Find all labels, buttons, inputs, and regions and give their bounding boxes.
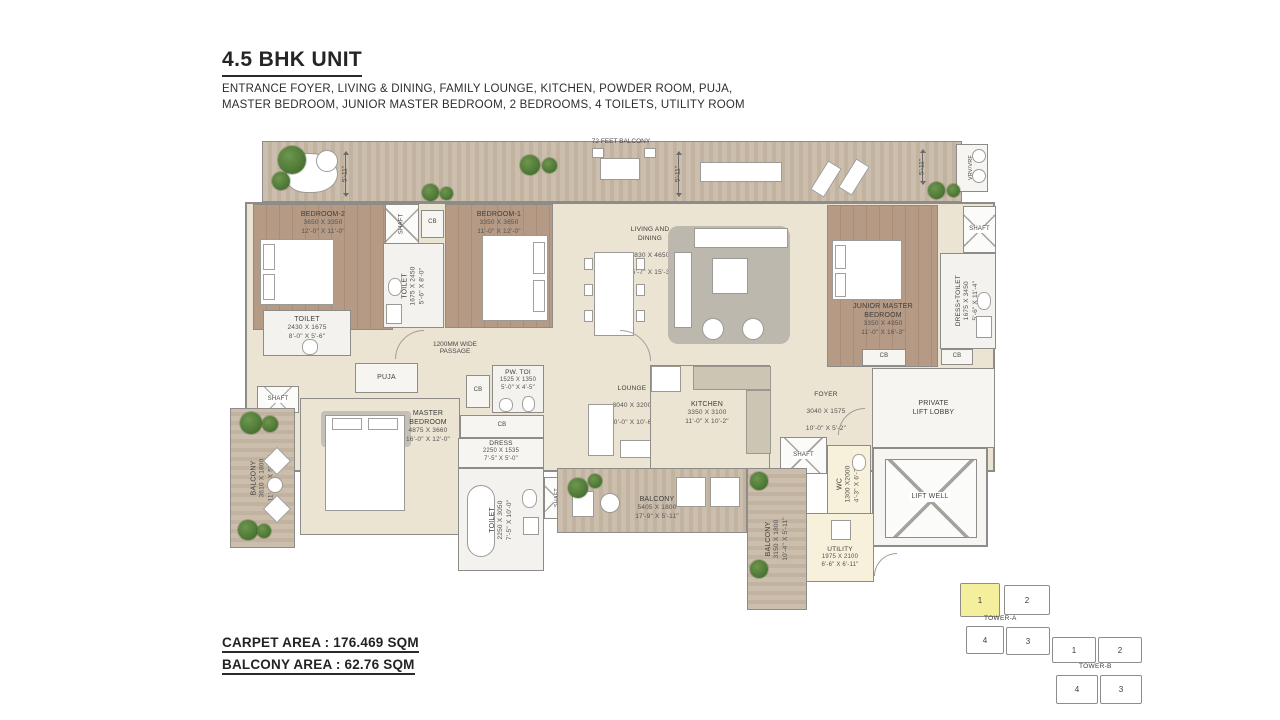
chair-icon	[644, 148, 656, 158]
tree-icon	[278, 146, 306, 174]
junior-master-label: JUNIOR MASTER BEDROOM 3350 X 4950 11'-0"…	[842, 302, 924, 337]
bed-icon	[482, 235, 548, 321]
passage-label: 1200MM WIDE PASSAGE	[420, 341, 490, 355]
keyplan-tower-a-unit-2: 2	[1004, 585, 1050, 615]
floor-plan-page: 4.5 BHK UNIT ENTRANCE FOYER, LIVING & DI…	[0, 0, 1280, 720]
chair-icon	[636, 258, 645, 270]
shaft-label: SHAFT	[267, 396, 290, 404]
lift-well-label: LIFT WELL	[909, 492, 950, 501]
table-icon	[267, 477, 283, 493]
wc-fixture-icon	[852, 454, 866, 471]
tree-icon	[947, 184, 960, 197]
tree-icon	[542, 158, 557, 173]
dimension-marker: 5'-11"	[678, 152, 679, 196]
shaft-top-right: SHAFT	[963, 206, 996, 253]
page-title: 4.5 BHK UNIT	[222, 48, 362, 77]
dining-table-icon	[594, 252, 634, 336]
fan-icon	[972, 149, 986, 163]
toilet-master-label: TOILET 2250 X 3050 7'-5" X 10'-0"	[488, 499, 514, 539]
cb-wardrobe: CB	[460, 415, 544, 438]
basin-icon	[976, 316, 992, 338]
shaft-label: SHAFT	[398, 214, 406, 235]
tree-icon	[750, 472, 768, 490]
keyplan-tower-a-unit-4: 4	[966, 626, 1004, 654]
room-vrv: VRV/VRF	[956, 144, 988, 192]
tree-icon	[257, 524, 271, 538]
cb-label: CB	[863, 350, 905, 361]
tree-icon	[588, 474, 602, 488]
sofa-icon	[694, 228, 788, 248]
chair-icon	[710, 477, 740, 507]
toilet-mid-label: TOILET 1675 X 2450 5'-6" X 8'-0"	[401, 266, 427, 305]
room-junior-master: JUNIOR MASTER BEDROOM 3350 X 4950 11'-0"…	[827, 205, 938, 367]
bed-icon	[832, 240, 902, 300]
keyplan-tower-b-unit-2: 2	[1098, 637, 1142, 663]
lounge-sofa-icon	[588, 404, 614, 456]
page-subtitle: ENTRANCE FOYER, LIVING & DINING, FAMILY …	[222, 81, 745, 113]
master-label: MASTER BEDROOM 4875 X 3660 16'-0" X 12'-…	[397, 409, 459, 444]
chair-icon	[584, 258, 593, 270]
tree-icon	[422, 184, 439, 201]
bed-icon	[260, 239, 334, 305]
tower-a-label: TOWER-A	[984, 615, 1017, 622]
armchair-icon	[702, 318, 724, 340]
keyplan-tower-a-unit-3: 3	[1006, 627, 1050, 655]
tree-icon	[262, 416, 278, 432]
cb-label: CB	[461, 416, 543, 430]
outdoor-table-icon	[600, 158, 640, 180]
wc-fixture-icon	[388, 278, 402, 296]
basin-icon	[386, 304, 402, 324]
room-toilet-left: TOILET 2430 X 1675 8'-0" X 5'-6"	[263, 310, 351, 356]
tower-b-label: TOWER-B	[1079, 663, 1112, 670]
balcony-72-label: 72 FEET BALCONY	[566, 138, 676, 145]
room-private-lift-lobby: PRIVATE LIFT LOBBY	[872, 368, 995, 448]
chair-icon	[636, 310, 645, 322]
key-plan: 1 2 TOWER-A 4 3 1 2 TOWER-B 4 3	[948, 575, 1163, 717]
cb-label: CB	[942, 350, 972, 361]
room-kitchen: KITCHEN 3350 X 3100 11'-0" X 10'-2"	[650, 365, 770, 471]
wc-fixture-icon	[522, 396, 535, 412]
bedroom2-label: BEDROOM-2 3650 X 3350 12'-0" X 11'-0"	[254, 205, 392, 236]
kitchen-label: KITCHEN 3350 X 3100 11'-0" X 10'-2"	[669, 400, 745, 426]
table-icon	[600, 493, 620, 513]
dimension-marker: 5'-11"	[922, 150, 923, 184]
room-master-bedroom: MASTER BEDROOM 4875 X 3660 16'-0" X 12'-…	[300, 398, 460, 535]
carpet-area-label: CARPET AREA : 176.469 SQM	[222, 635, 419, 653]
tree-icon	[238, 520, 258, 540]
cb-box: CB	[421, 210, 444, 238]
tree-icon	[272, 172, 290, 190]
room-lift-well: LIFT WELL	[872, 447, 988, 547]
fridge-icon	[651, 366, 681, 392]
kitchen-counter	[693, 366, 771, 390]
private-lobby-label: PRIVATE LIFT LOBBY	[913, 399, 955, 417]
dress-label: DRESS 2250 X 1535 7'-5" X 5'-0"	[459, 439, 543, 464]
table-icon	[316, 150, 338, 172]
coffee-table-icon	[712, 258, 748, 294]
tree-icon	[750, 560, 768, 578]
balcony-bottom-deck: BALCONY 5405 X 1800 17'-9" X 5'-11"	[557, 468, 747, 533]
balcony-area-label: BALCONY AREA : 62.76 SQM	[222, 657, 415, 675]
keyplan-tower-a-unit-1: 1	[960, 583, 1000, 617]
outdoor-sofa-icon	[700, 162, 782, 182]
room-puja: PUJA	[355, 363, 418, 393]
shaft-label: SHAFT	[968, 226, 991, 234]
keyplan-tower-b-unit-1: 1	[1052, 637, 1096, 663]
room-pw-toi: PW. TOI 1525 X 1350 5'-0" X 4'-5"	[492, 365, 544, 413]
room-bedroom-1: BEDROOM-1 3350 X 3650 11'-0" X 12'-0"	[445, 204, 553, 328]
shaft-label: SHAFT	[792, 452, 815, 460]
basin-icon	[499, 398, 513, 412]
tree-icon	[240, 412, 262, 434]
cb-box: CB	[862, 349, 906, 366]
cb-label: CB	[467, 376, 489, 395]
tree-icon	[520, 155, 540, 175]
wc-fixture-icon	[302, 339, 318, 355]
wc-label: WC 1300 X2000 4'-3" X 6'-7"	[836, 465, 862, 502]
tree-icon	[928, 182, 945, 199]
room-dress-toilet: DRESS+TOILET 1675 X 3450 5'-6" X 11'-4"	[940, 253, 996, 349]
washer-icon	[831, 520, 851, 540]
bed-icon	[325, 415, 405, 511]
room-toilet-master: TOILET 2250 X 3050 7'-5" X 10'-0"	[458, 468, 544, 571]
kitchen-counter	[746, 390, 771, 454]
chair-icon	[676, 477, 706, 507]
room-dress: DRESS 2250 X 1535 7'-5" X 5'-0"	[458, 438, 544, 468]
puja-label: PUJA	[356, 364, 417, 382]
fan-icon	[972, 169, 986, 183]
chair-icon	[584, 284, 593, 296]
toilet-left-label: TOILET 2430 X 1675 8'-0" X 5'-6"	[264, 311, 350, 341]
dimension-marker: 5'-11"	[345, 152, 346, 196]
room-toilet-mid: TOILET 1675 X 2450 5'-6" X 8'-0"	[383, 243, 444, 328]
area-summary: CARPET AREA : 176.469 SQM BALCONY AREA :…	[222, 635, 419, 679]
bedroom1-label: BEDROOM-1 3350 X 3650 11'-0" X 12'-0"	[446, 205, 552, 236]
chair-icon	[592, 148, 604, 158]
pw-toi-label: PW. TOI 1525 X 1350 5'-0" X 4'-5"	[493, 366, 543, 393]
door-swing	[874, 553, 897, 576]
room-utility: UTILITY 1975 X 2100 6'-6" X 6'-11"	[806, 513, 874, 582]
chair-icon	[584, 310, 593, 322]
chair-icon	[636, 284, 645, 296]
cb-box: CB	[941, 349, 973, 365]
keyplan-tower-b-unit-4: 4	[1056, 675, 1098, 704]
room-wc: WC 1300 X2000 4'-3" X 6'-7"	[827, 445, 871, 523]
basin-icon	[523, 517, 539, 535]
wc-fixture-icon	[977, 292, 991, 310]
wc-fixture-icon	[522, 489, 537, 508]
shaft-bedrooms: SHAFT	[385, 204, 419, 244]
tree-icon	[568, 478, 588, 498]
keyplan-tower-b-unit-3: 3	[1100, 675, 1142, 704]
tree-icon	[440, 187, 453, 200]
balcony-right-label: BALCONY 3150 X 1800 10'-4" X 5'-11"	[764, 517, 790, 561]
armchair-icon	[742, 318, 764, 340]
cb-box: CB	[466, 375, 490, 408]
cb-label: CB	[422, 211, 443, 227]
sofa-icon	[674, 252, 692, 328]
